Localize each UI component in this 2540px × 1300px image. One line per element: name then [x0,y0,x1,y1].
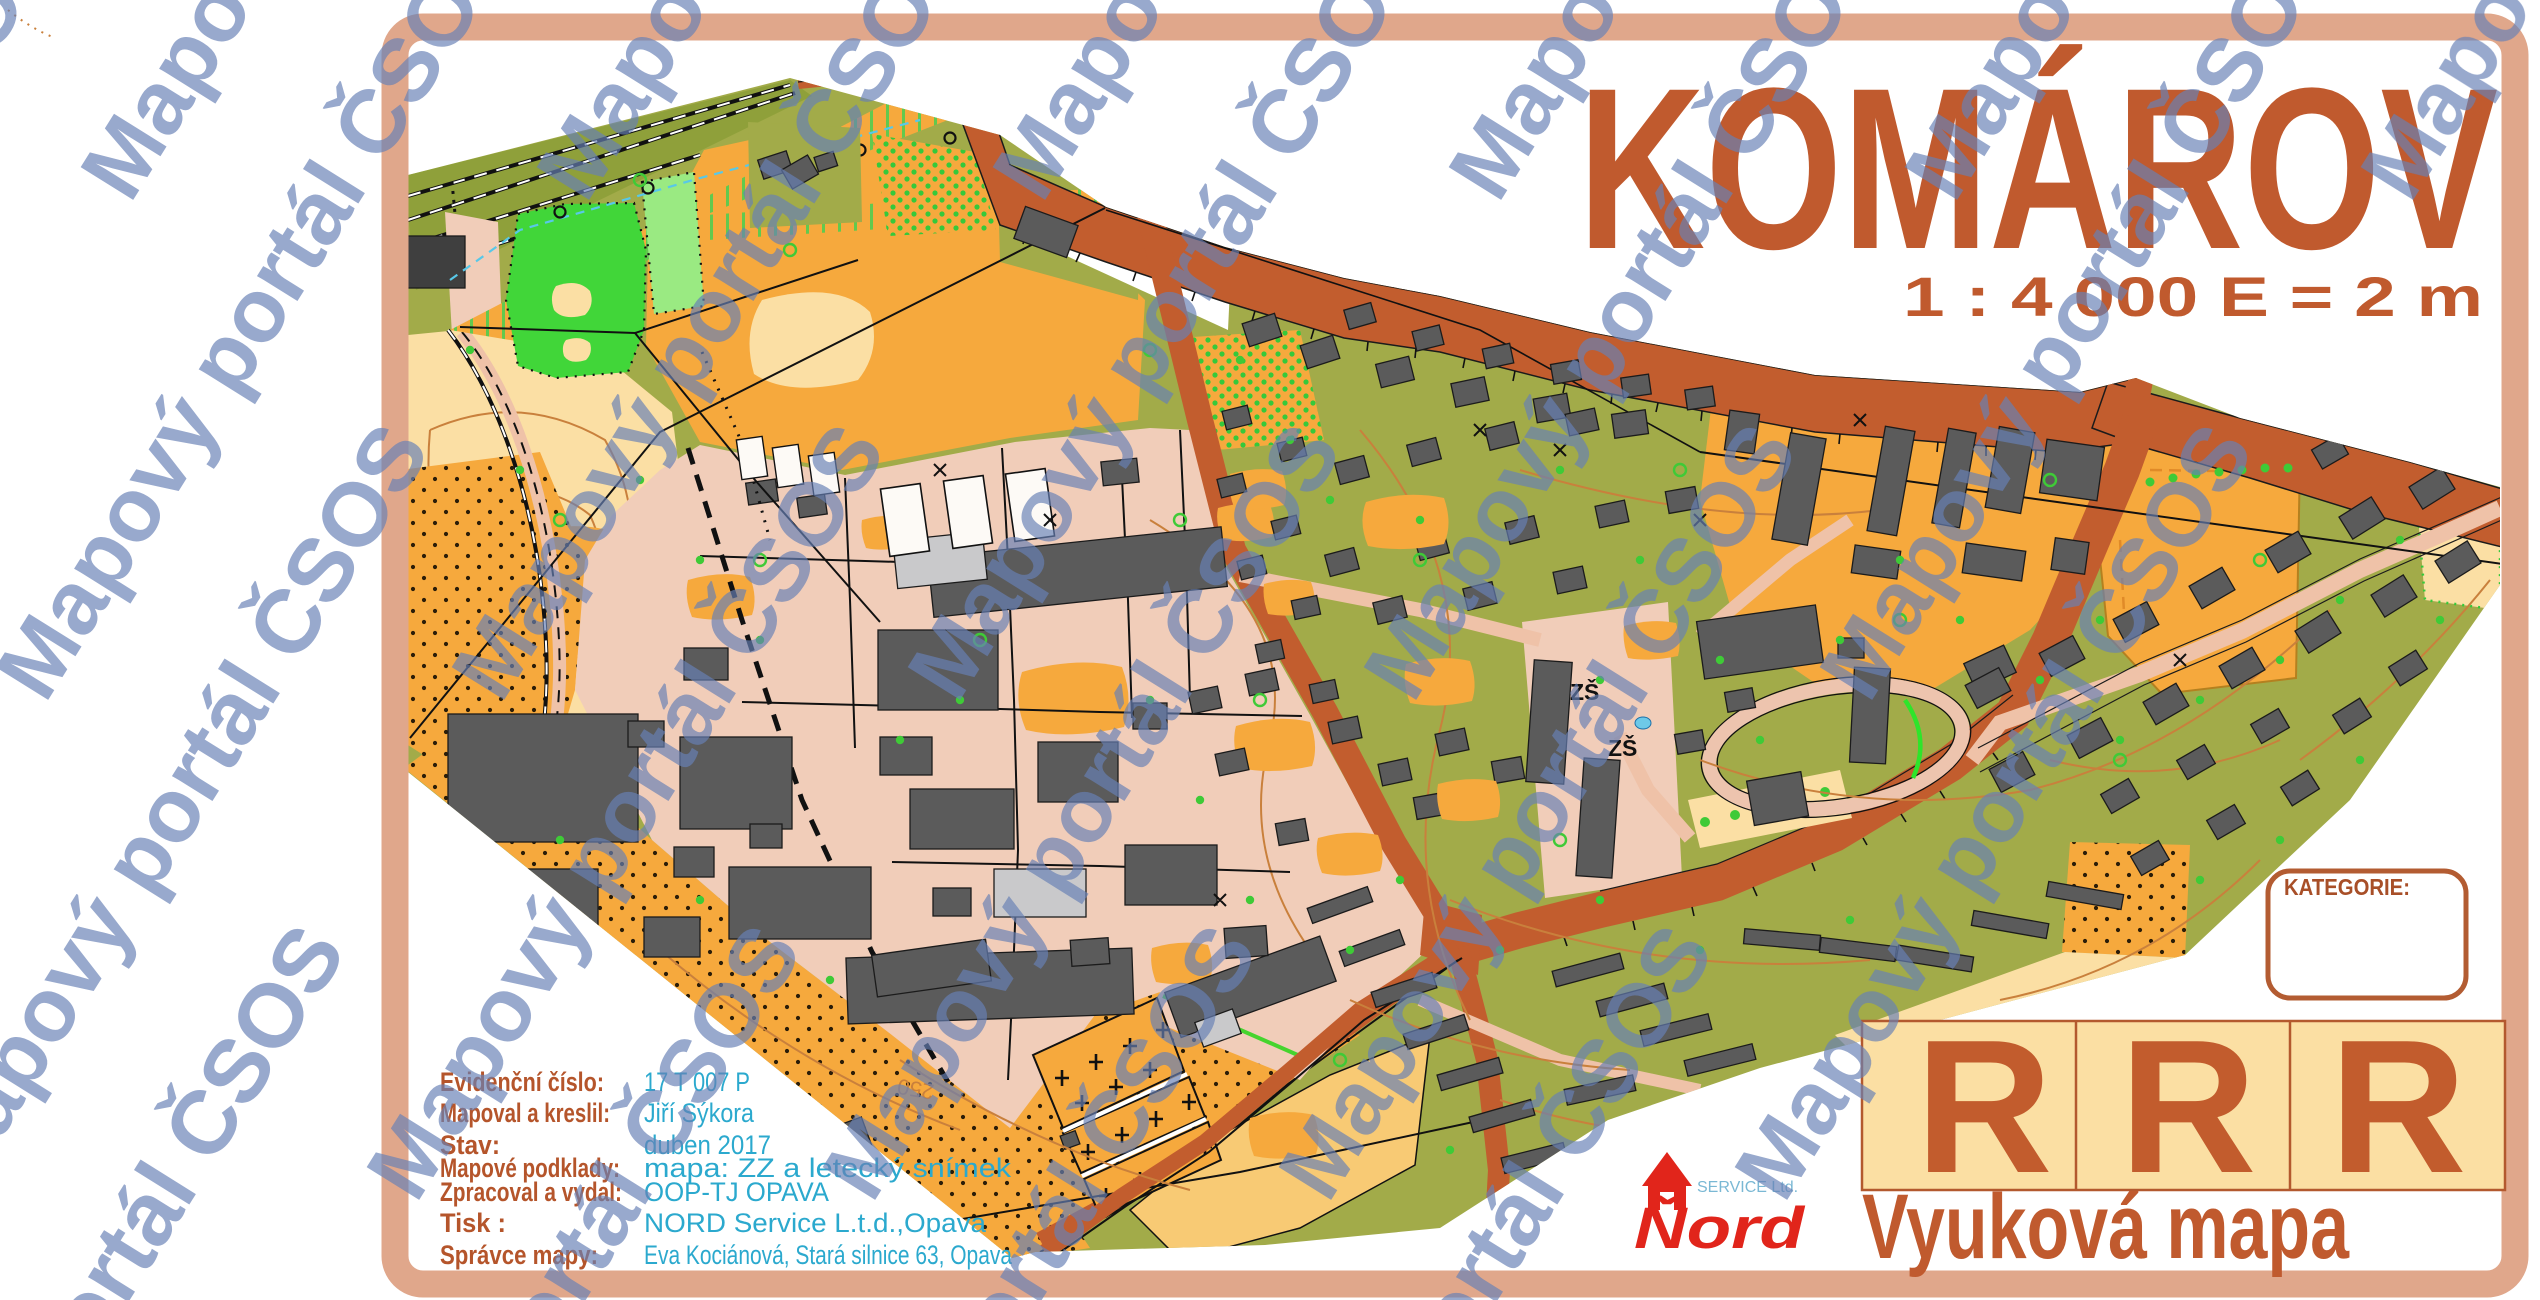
svg-text:NORD Service L.t.d.,Opava: NORD Service L.t.d.,Opava [644,1208,987,1238]
svg-text:Eva Kociánová, Stará silnice 6: Eva Kociánová, Stará silnice 63, Opava [644,1240,1013,1270]
svg-text:Vyuková mapa: Vyuková mapa [1862,1176,2350,1278]
svg-text:Ňord: Ňord [1634,1196,1806,1261]
svg-text:R: R [2329,1001,2466,1213]
svg-text:Tisk :: Tisk : [440,1208,506,1238]
svg-text:1 : 4 000 E = 2 m: 1 : 4 000 E = 2 m [1903,265,2483,328]
svg-text:KATEGORIE:: KATEGORIE: [2284,874,2410,900]
